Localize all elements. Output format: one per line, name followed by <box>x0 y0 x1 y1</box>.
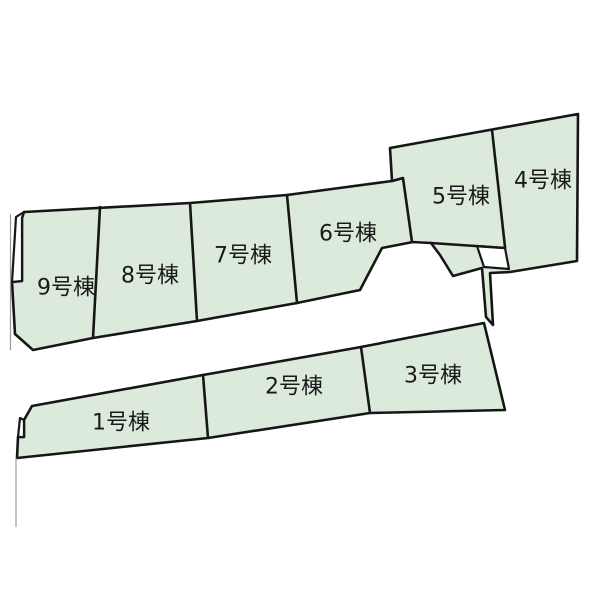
lot-label-8: 8号棟 <box>121 264 179 289</box>
lot-label-5: 5号棟 <box>432 185 490 210</box>
site-plan-svg: 1号棟2号棟3号棟4号棟5号棟6号棟7号棟8号棟9号棟 <box>0 0 600 599</box>
region-upper-band <box>12 178 413 350</box>
lot-label-4: 4号棟 <box>514 169 572 194</box>
region-block-4-5 <box>390 114 578 325</box>
lot-label-3: 3号棟 <box>404 364 462 389</box>
lot-label-7: 7号棟 <box>214 244 272 269</box>
site-plan: 1号棟2号棟3号棟4号棟5号棟6号棟7号棟8号棟9号棟 <box>0 0 600 599</box>
cutout-left-notch-upper <box>12 212 24 282</box>
lot-label-6: 6号棟 <box>319 222 377 247</box>
cutout-left-notch-lower <box>18 418 24 437</box>
lot-label-9: 9号棟 <box>37 276 95 301</box>
lot-label-2: 2号棟 <box>265 375 323 400</box>
region-bottom-band <box>17 323 505 458</box>
lot-label-1: 1号棟 <box>92 411 150 436</box>
